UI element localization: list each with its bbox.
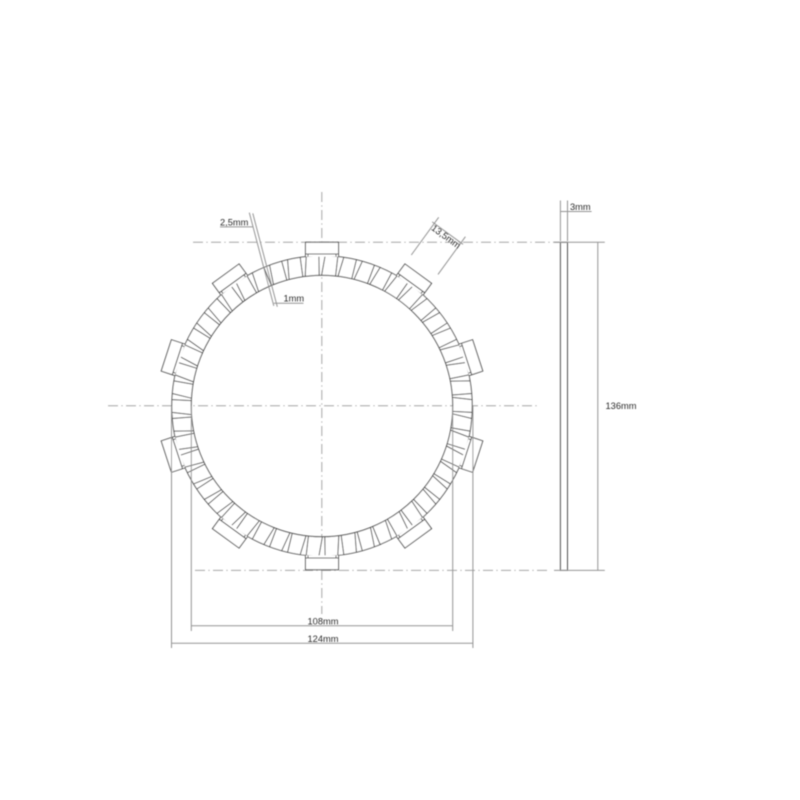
svg-text:1mm: 1mm [284,294,305,304]
svg-text:124mm: 124mm [308,634,339,644]
svg-text:3mm: 3mm [570,202,591,212]
svg-text:108mm: 108mm [308,616,339,626]
svg-text:2,5mm: 2,5mm [220,218,249,228]
svg-text:136mm: 136mm [606,401,637,411]
